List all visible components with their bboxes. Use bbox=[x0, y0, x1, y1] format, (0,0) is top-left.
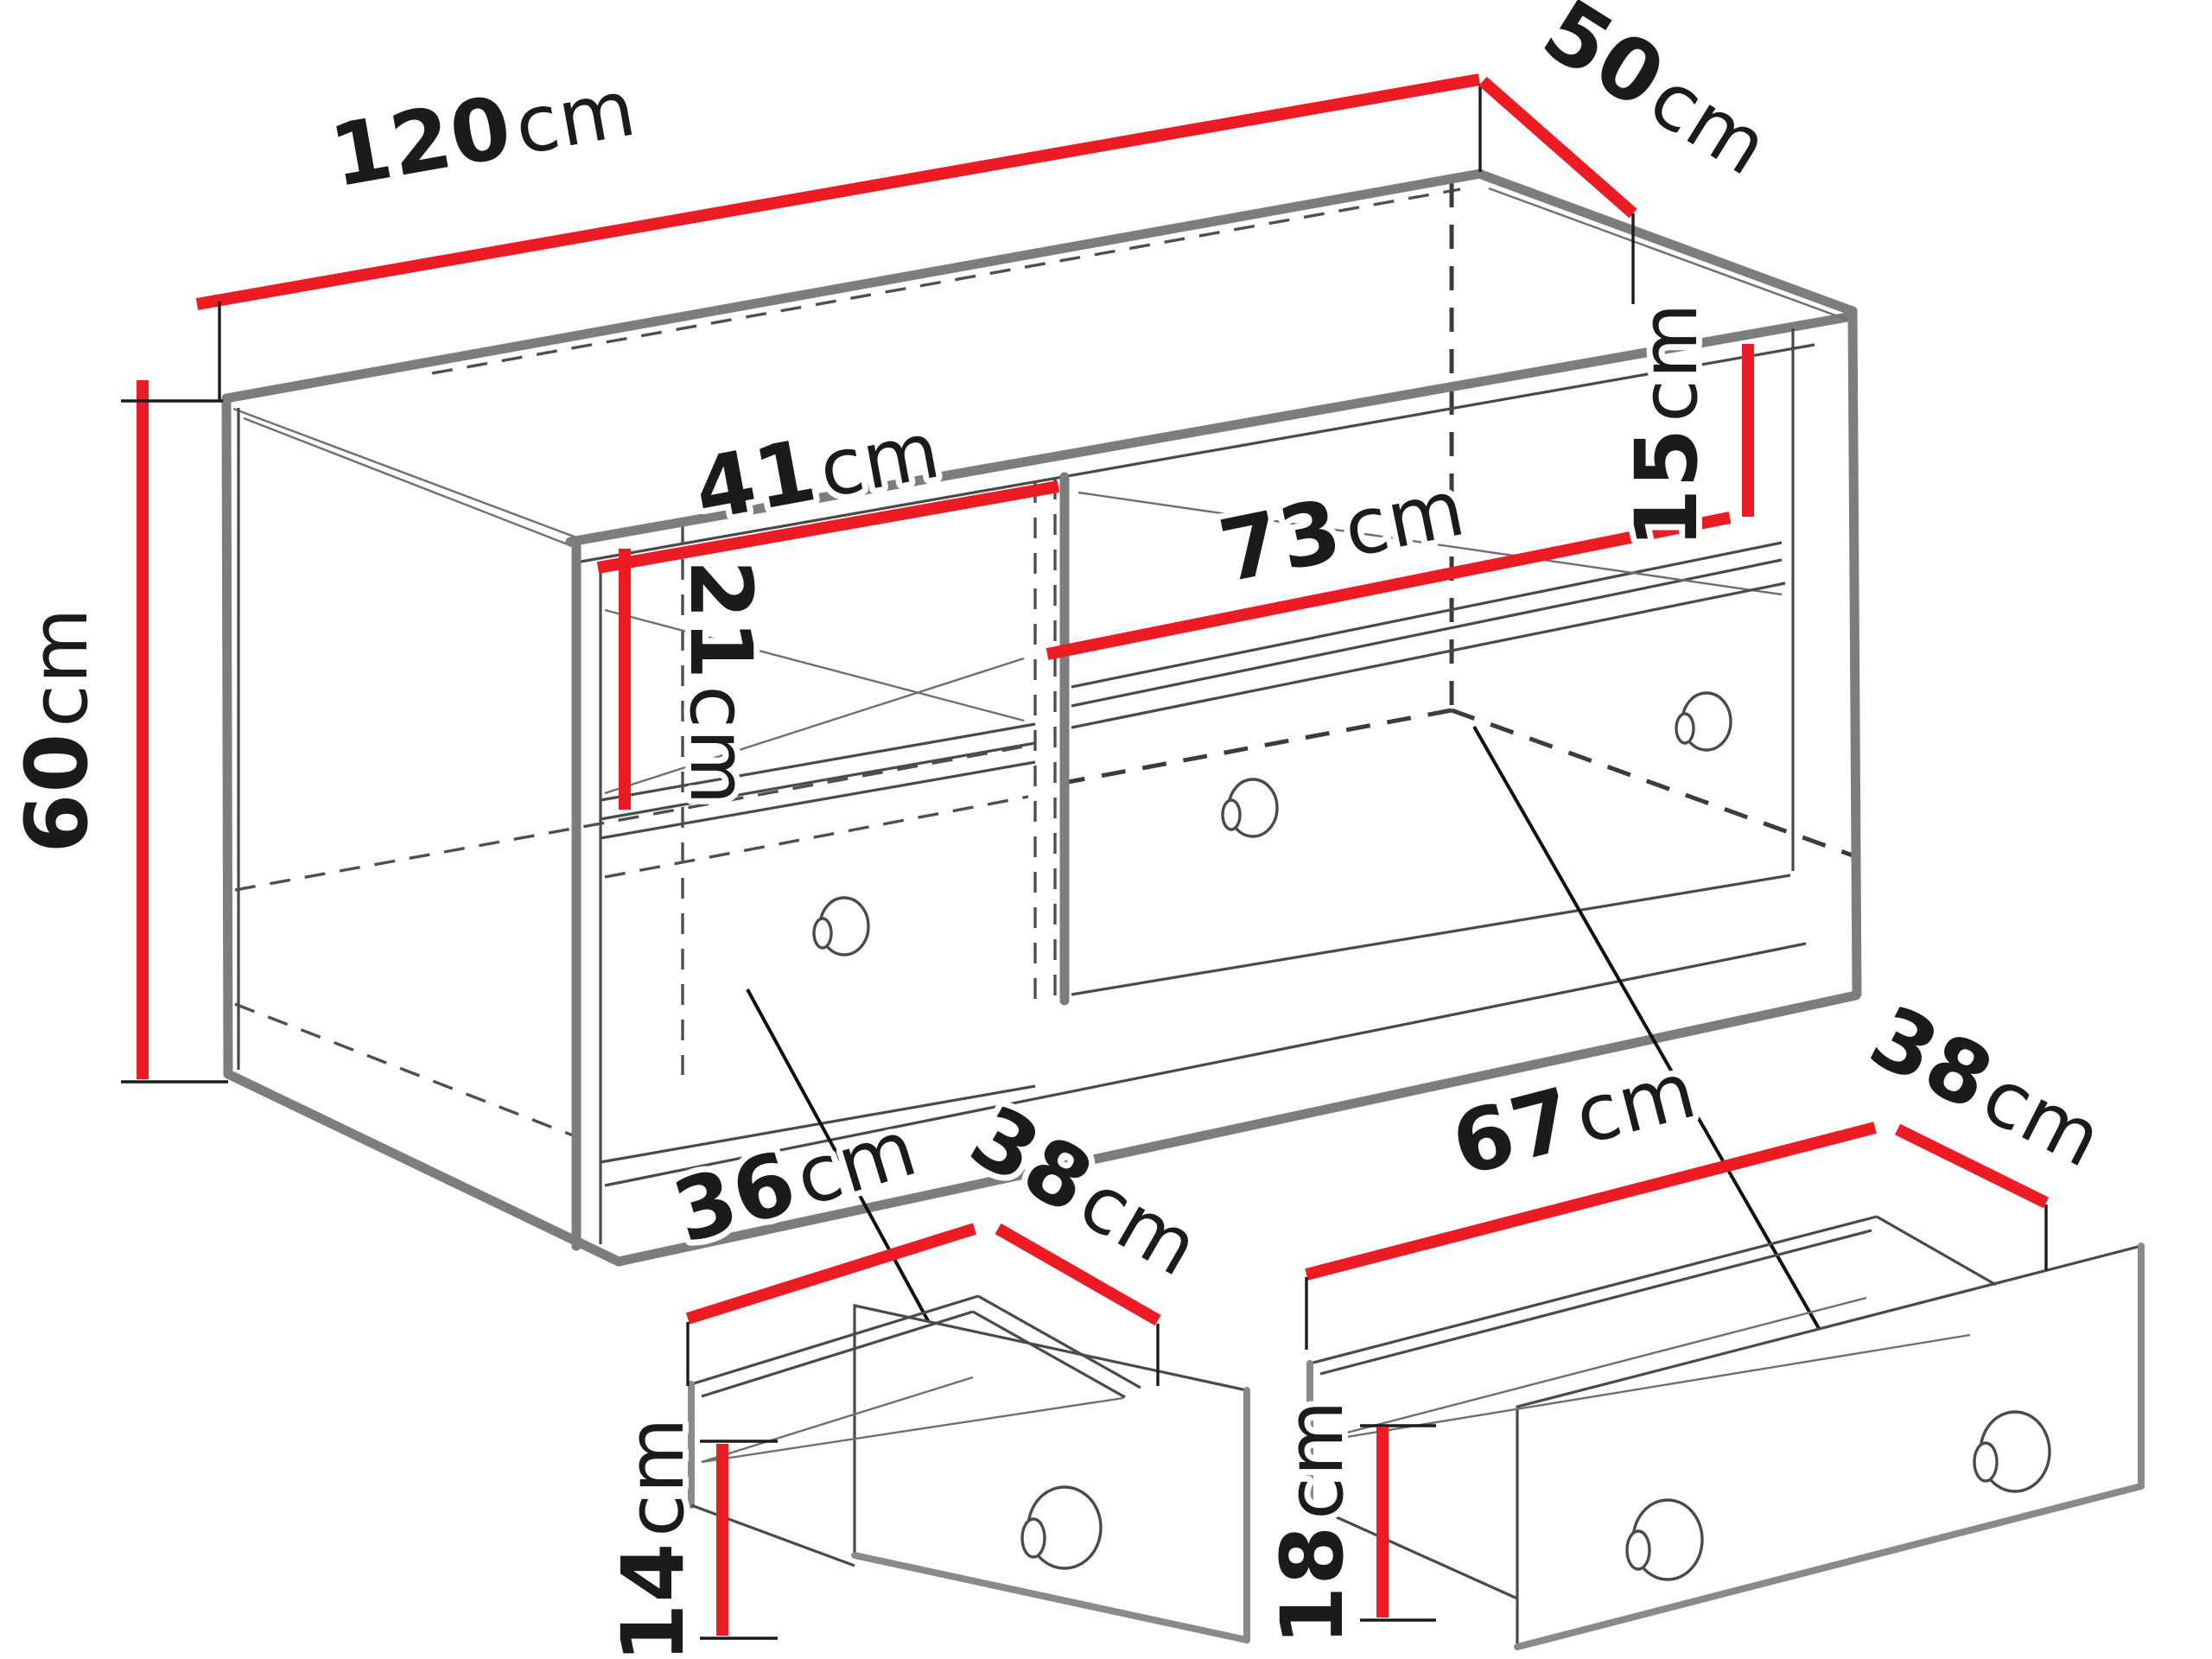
small-drawer-bottom-receding bbox=[691, 1505, 855, 1566]
left-front-edge bbox=[226, 398, 228, 1074]
large-drawer-rim-depth bbox=[1877, 1217, 1996, 1285]
dimension-label: 36cm bbox=[663, 1096, 927, 1262]
hidden-back-bottom-left bbox=[1068, 710, 1452, 782]
dimension-label: 50cm bbox=[1526, 0, 1788, 195]
dimension-label: 38cm bbox=[1855, 987, 2120, 1187]
dimension-label: 38cm bbox=[955, 1087, 1217, 1296]
hidden-left-shelf-back-edge bbox=[605, 797, 1028, 877]
dimension-left-niche-width: 41cm bbox=[598, 398, 1058, 568]
dimension-cabinet-height: 60cm bbox=[8, 380, 228, 1082]
knob-side-icon bbox=[1022, 1519, 1045, 1557]
dimension-value: 15 bbox=[1618, 428, 1717, 549]
dimension-unit: cm bbox=[1270, 1400, 1361, 1520]
right-drawer-top-edge bbox=[1071, 583, 1785, 728]
small-drawer-drawing: 36cm 38cm 14cm bbox=[604, 1087, 1247, 1659]
dimension-diagram: 120cm 50cm 60cm 41cm bbox=[0, 0, 2212, 1659]
left-niche-diagonal-a bbox=[605, 658, 1024, 793]
right-back-edge bbox=[1853, 311, 1857, 994]
right-top-edge bbox=[1484, 175, 1853, 311]
dimension-small-drawer-height: 14cm bbox=[604, 1417, 778, 1659]
dimension-label: 120cm bbox=[323, 56, 642, 207]
right-drawer-bottom-edge bbox=[1071, 875, 1790, 995]
cabinet-hidden-edges bbox=[235, 183, 1853, 1137]
left-bottom-receding-edge bbox=[228, 1074, 619, 1262]
top-front-edge bbox=[226, 174, 1480, 398]
dimension-value: 67 bbox=[1442, 1070, 1584, 1196]
dimension-label: 60cm bbox=[8, 607, 107, 854]
dimension-unit: cm bbox=[15, 607, 105, 728]
dimension-unit: cm bbox=[508, 62, 642, 173]
large-drawer-drawing: 67cm 38cm 18cm bbox=[1263, 987, 2141, 1647]
dimension-left-niche-height: 21cm bbox=[625, 549, 770, 810]
left-niche-diagonal-b bbox=[605, 610, 1024, 721]
knob-side-icon bbox=[1676, 714, 1694, 743]
dimension-unit: cm bbox=[785, 1103, 927, 1224]
hidden-top-back-edge bbox=[432, 189, 1460, 373]
dimension-value: 60 bbox=[8, 733, 107, 854]
dimension-unit: cm bbox=[812, 404, 947, 516]
interior-receding-top-a bbox=[233, 409, 576, 537]
knob-handle-right-drawer-a bbox=[1223, 779, 1277, 836]
left-niche-floor-front bbox=[601, 724, 1035, 800]
right-niche-floor-front bbox=[1071, 543, 1782, 687]
dimension-label: 15cm bbox=[1618, 302, 1717, 549]
dimension-cabinet-width: 120cm bbox=[197, 56, 1480, 401]
knob-handle-left-drawer bbox=[814, 898, 868, 955]
dimension-value: 18 bbox=[1263, 1525, 1363, 1646]
hidden-left-bottom-edge bbox=[235, 1004, 577, 1137]
dimension-label: 14cm bbox=[604, 1417, 703, 1659]
knob-side-icon bbox=[1974, 1443, 1997, 1481]
dimension-cabinet-depth: 50cm bbox=[1483, 0, 1788, 304]
dimension-value: 21 bbox=[671, 560, 770, 681]
dimension-unit: cm bbox=[1566, 1045, 1705, 1162]
interior-receding-top-b bbox=[244, 418, 572, 546]
knob-handle-right-drawer-b bbox=[1676, 693, 1731, 750]
dimension-label: 67cm bbox=[1442, 1038, 1706, 1196]
right-top-inner bbox=[1489, 188, 1847, 320]
dimension-unit: cm bbox=[672, 685, 763, 805]
knob-side-icon bbox=[1223, 800, 1240, 829]
knob-side-icon bbox=[1627, 1531, 1649, 1569]
diagram-canvas: 120cm 50cm 60cm 41cm bbox=[0, 0, 2212, 1659]
dimension-unit: cm bbox=[1624, 302, 1715, 423]
dimension-value: 14 bbox=[604, 1542, 703, 1659]
dimension-label: 21cm bbox=[671, 560, 770, 806]
knob-side-icon bbox=[814, 918, 831, 948]
dimension-label: 41cm bbox=[687, 398, 947, 541]
hidden-left-mid-edge bbox=[235, 745, 1033, 890]
dimension-value: 73 bbox=[1211, 480, 1350, 602]
dimension-unit: cm bbox=[611, 1417, 702, 1537]
dimension-value: 120 bbox=[323, 78, 518, 207]
